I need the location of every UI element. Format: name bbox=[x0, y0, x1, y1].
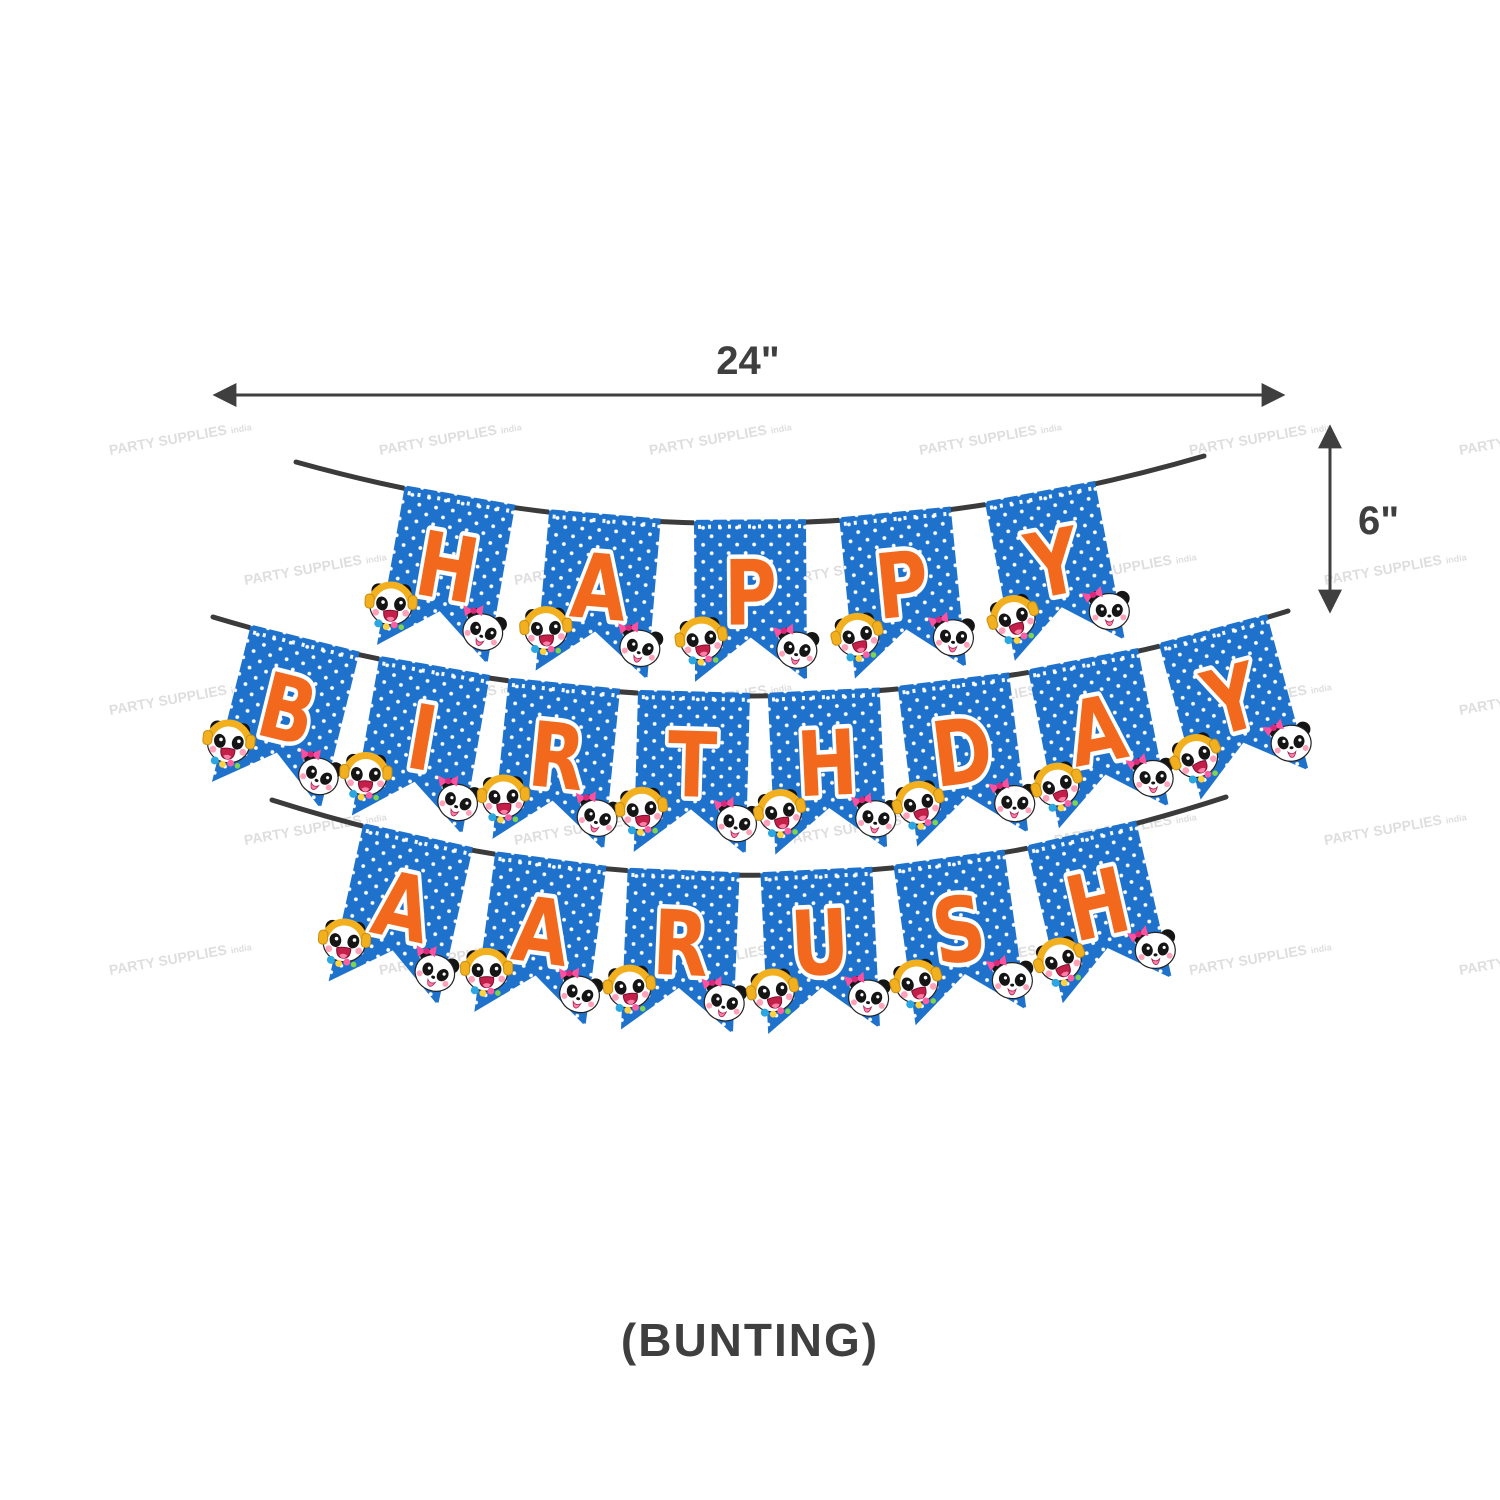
bunting-flag: I bbox=[330, 652, 504, 837]
watermark-text: PARTY SUPPLIES india bbox=[1188, 937, 1334, 978]
watermark-text: PARTY SUPPLIES india bbox=[243, 547, 389, 588]
flag-letter: T bbox=[666, 713, 718, 819]
width-dimension-label: 24" bbox=[716, 339, 779, 383]
height-dimension-label: 6" bbox=[1358, 499, 1399, 543]
width-dimension: 24" bbox=[216, 339, 1282, 395]
product-caption: (BUNTING) bbox=[621, 1314, 879, 1366]
bunting-banner-graphic: PARTY SUPPLIES indiaPARTY SUPPLIES india… bbox=[0, 0, 1500, 1500]
bunting-flag: P bbox=[817, 505, 980, 681]
bunting-flag: R bbox=[599, 867, 754, 1035]
watermark-text: PARTY SUPPLIES india bbox=[108, 417, 254, 458]
watermark-text: PARTY SUPPLIES india bbox=[1458, 677, 1500, 718]
bunting-flag: H bbox=[355, 482, 529, 667]
bunting-flag: A bbox=[514, 507, 676, 681]
watermark-text: PARTY SUPPLIES india bbox=[378, 417, 524, 458]
watermark-text: PARTY SUPPLIES india bbox=[1458, 937, 1500, 978]
watermark-text: PARTY SUPPLIES india bbox=[1458, 417, 1500, 458]
watermark-text: PARTY SUPPLIES india bbox=[918, 417, 1064, 458]
watermark-text: PARTY SUPPLIES india bbox=[1323, 807, 1469, 848]
watermark-text: PARTY SUPPLIES india bbox=[1188, 417, 1334, 458]
watermark-text: PARTY SUPPLIES india bbox=[1323, 547, 1469, 588]
product-image: PARTY SUPPLIES indiaPARTY SUPPLIES india… bbox=[0, 0, 1500, 1500]
bunting-row: HAPPY bbox=[296, 456, 1204, 682]
bunting-flag: T bbox=[612, 689, 765, 855]
watermark-text: PARTY SUPPLIES india bbox=[648, 417, 794, 458]
flag-letter: R bbox=[651, 891, 711, 998]
bunting-flag: A bbox=[453, 848, 621, 1028]
flag-letter: P bbox=[724, 542, 777, 647]
bunting-flag: P bbox=[672, 519, 822, 682]
bunting-flag: A bbox=[307, 818, 487, 1008]
watermark-text: PARTY SUPPLIES india bbox=[108, 937, 254, 978]
bunting-flag: S bbox=[872, 847, 1041, 1028]
